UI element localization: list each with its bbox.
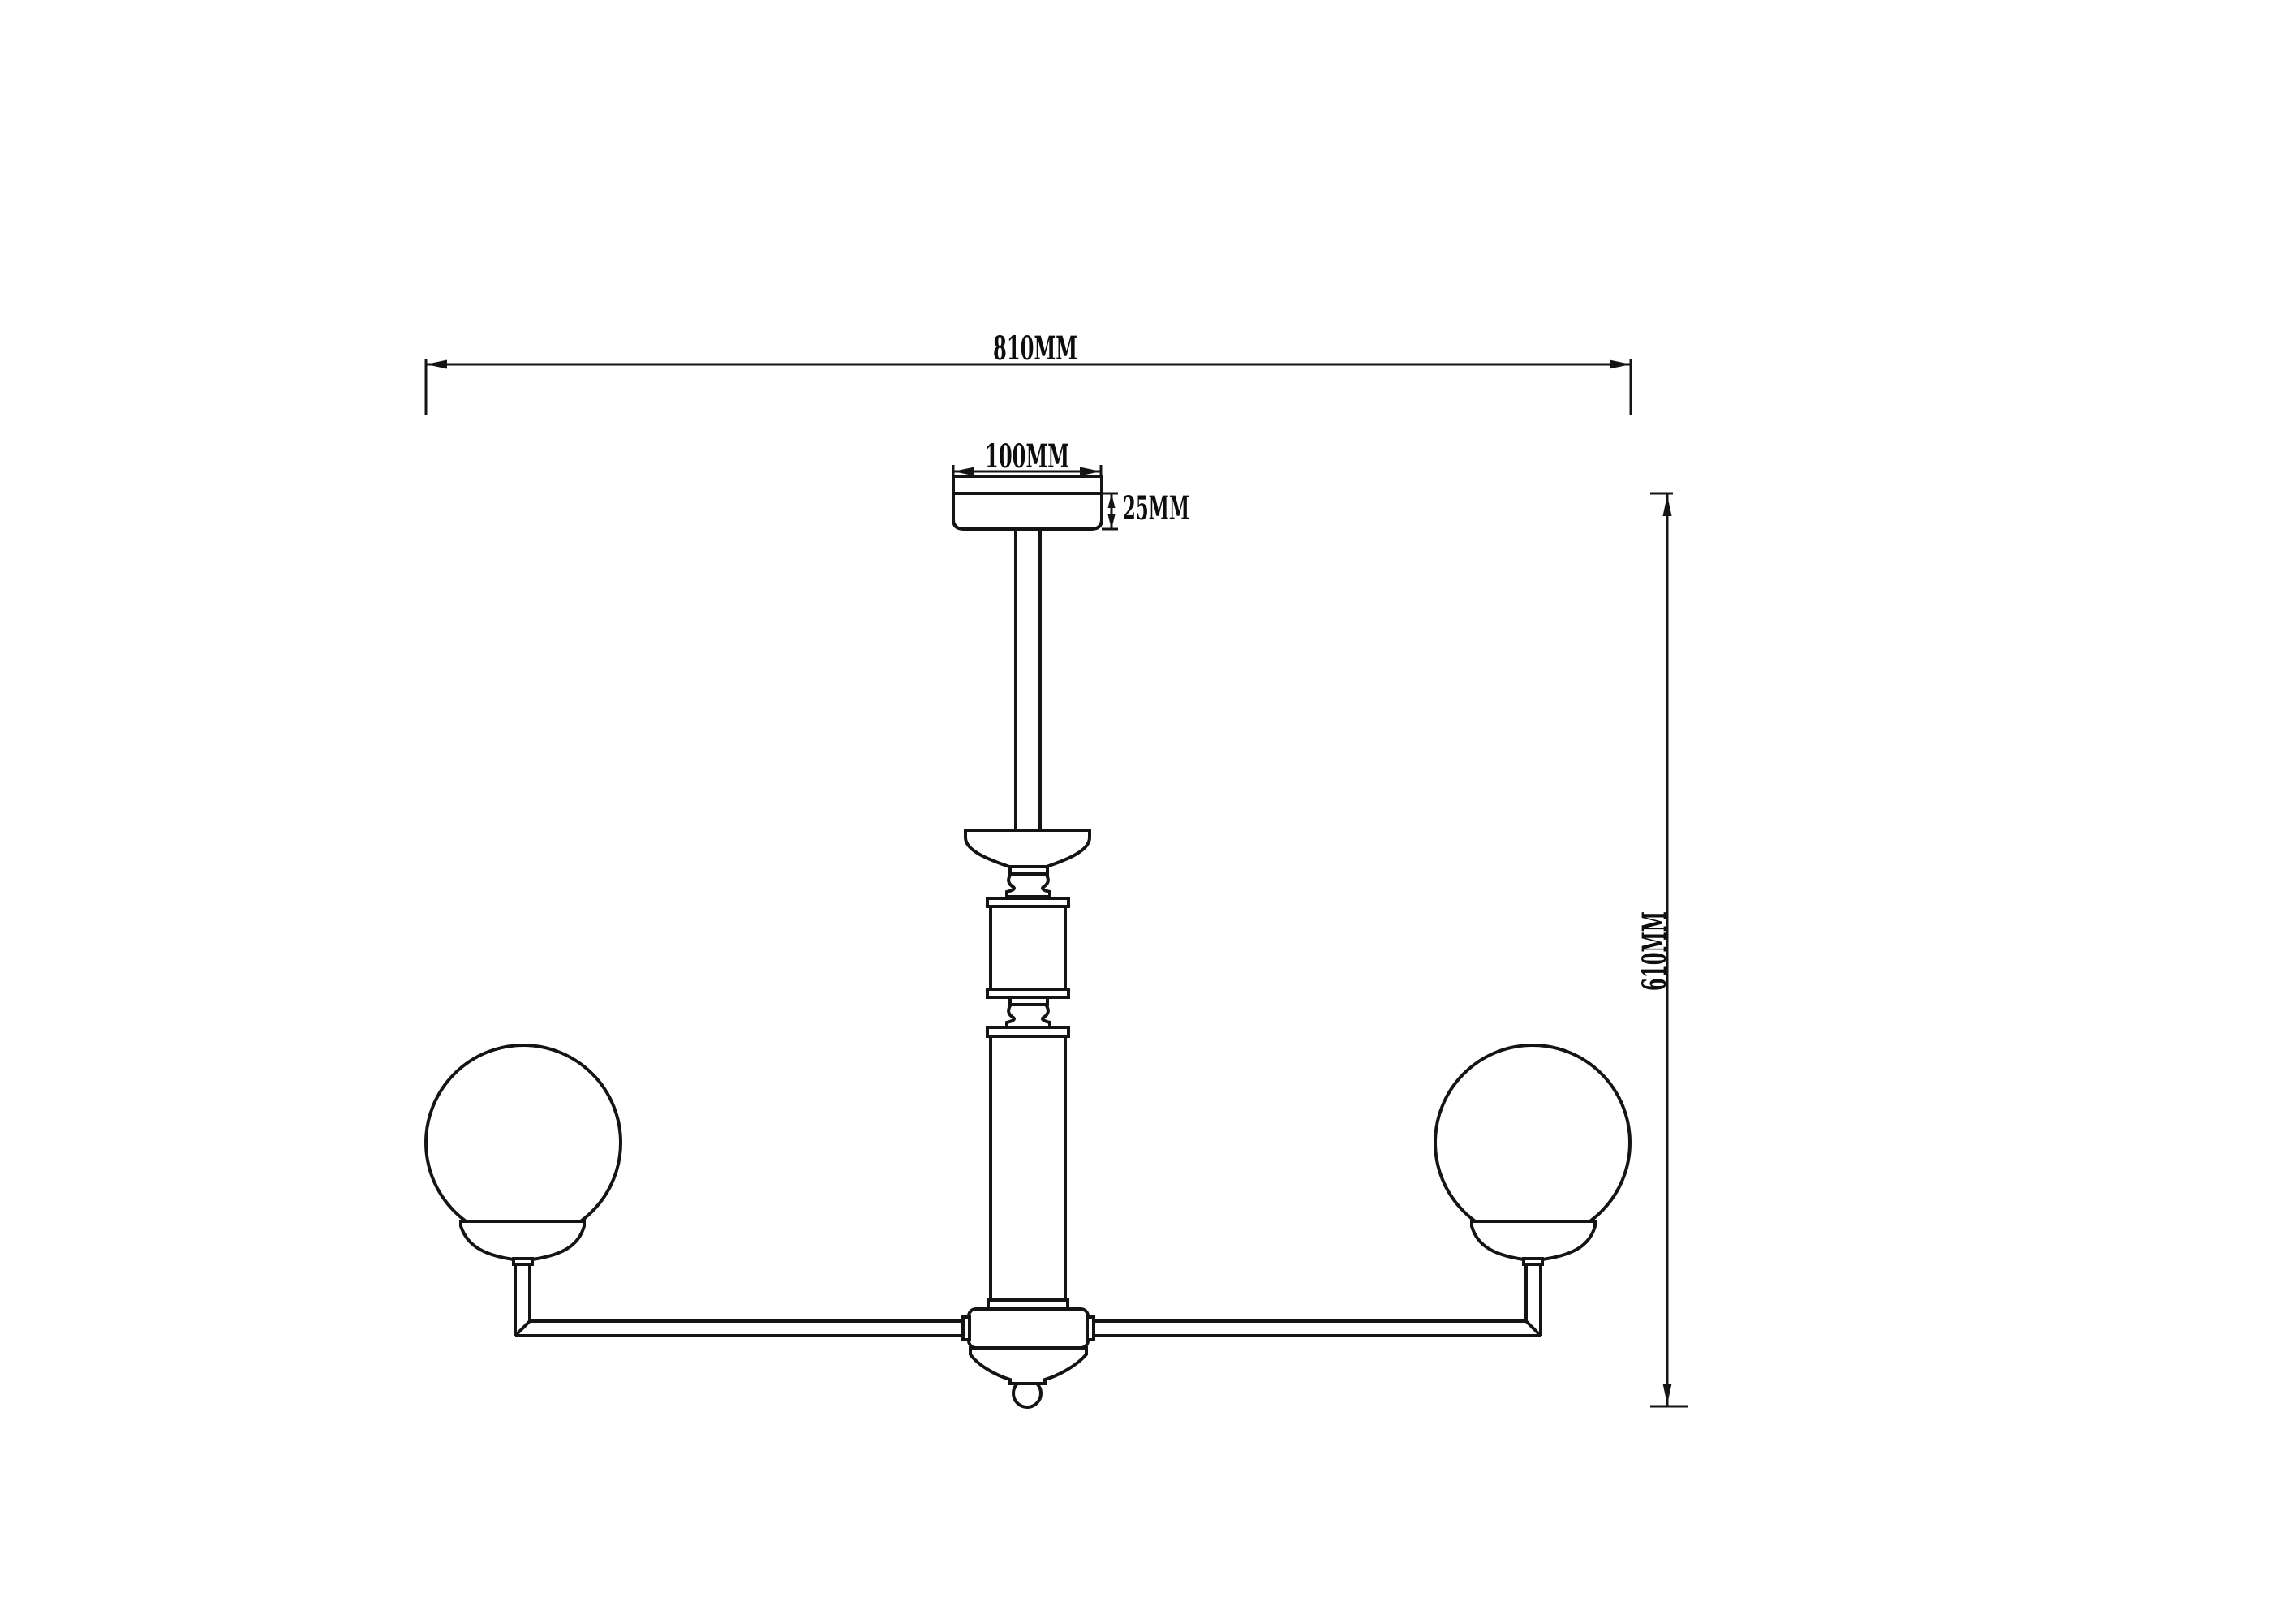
arm-hub (969, 1309, 1088, 1348)
left-globe-shade (426, 1045, 621, 1240)
arrowhead-down-icon (1663, 1384, 1672, 1405)
arrowhead-up-icon (1663, 495, 1672, 516)
canopy-height-label: 25MM (1123, 489, 1189, 527)
technical-drawing-page: 810MM 100MM 25MM 610MM (0, 0, 2296, 1623)
dimension-overall-width: 810MM (426, 329, 1631, 415)
chandelier-dimension-drawing: 810MM 100MM 25MM 610MM (0, 0, 2296, 1623)
fixture-body (426, 476, 1630, 1407)
right-shade-holder (1472, 1221, 1595, 1259)
arrowhead-left-icon (953, 467, 974, 476)
dimension-canopy-height: 25MM (1102, 489, 1189, 529)
right-holder-nipple (1524, 1259, 1542, 1264)
lower-knuckle-body (1007, 1005, 1050, 1027)
right-globe-shade (1435, 1045, 1630, 1240)
arrowhead-up-icon (1108, 493, 1116, 508)
canopy-width-label: 100MM (985, 437, 1069, 476)
trumpet-joint (965, 830, 1090, 867)
left-globe-assembly (426, 1045, 621, 1264)
arrowhead-left-icon (426, 360, 447, 369)
left-holder-nipple (514, 1259, 532, 1264)
upper-column-body (991, 906, 1065, 989)
hub-left-socket (963, 1317, 970, 1340)
dimension-canopy-width: 100MM (953, 437, 1101, 477)
arrowhead-down-icon (1108, 514, 1116, 529)
right-globe-assembly (1435, 1045, 1630, 1264)
arrowhead-right-icon (1610, 360, 1631, 369)
left-shade-holder (461, 1221, 584, 1259)
overall-height-label: 610MM (1636, 911, 1674, 991)
right-elbow-miter (1526, 1321, 1541, 1336)
lower-column-body (991, 1036, 1065, 1300)
ceiling-canopy (953, 476, 1102, 529)
overall-width-label: 810MM (993, 329, 1077, 368)
right-arm (1092, 1264, 1541, 1336)
arrowhead-right-icon (1080, 467, 1101, 476)
left-arm (515, 1264, 964, 1336)
upper-knuckle-body (1007, 874, 1050, 897)
hub-bell-skirt (970, 1348, 1086, 1384)
dimension-overall-height: 610MM (1636, 493, 1688, 1406)
left-elbow-miter (515, 1321, 530, 1336)
